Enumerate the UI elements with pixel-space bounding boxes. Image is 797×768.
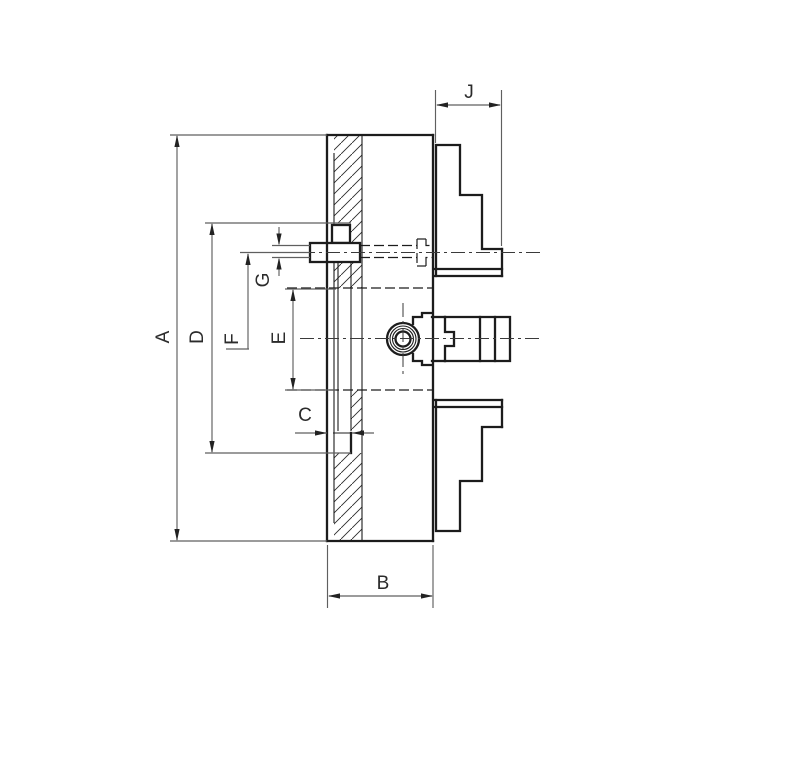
bottom-jaw (435, 400, 502, 531)
dim-label-B: B (377, 573, 390, 594)
dimension-J: J (436, 82, 502, 246)
dim-label-J: J (464, 82, 474, 103)
dim-label-G: G (253, 273, 274, 288)
dim-label-A: A (153, 330, 174, 343)
dim-label-F: F (222, 333, 243, 345)
mounting-boss (332, 225, 350, 243)
dimension-B: B (328, 545, 434, 608)
top-jaw (435, 145, 502, 276)
dimension-G: G (253, 227, 310, 287)
dim-label-C: C (298, 405, 312, 426)
dim-label-D: D (187, 330, 208, 344)
dimension-F: F (222, 253, 310, 350)
technical-drawing-canvas: A D F E G (0, 0, 797, 768)
drawing-sheet: A D F E G (0, 0, 797, 768)
lower-boss (333, 433, 351, 453)
dim-label-E: E (269, 332, 290, 345)
